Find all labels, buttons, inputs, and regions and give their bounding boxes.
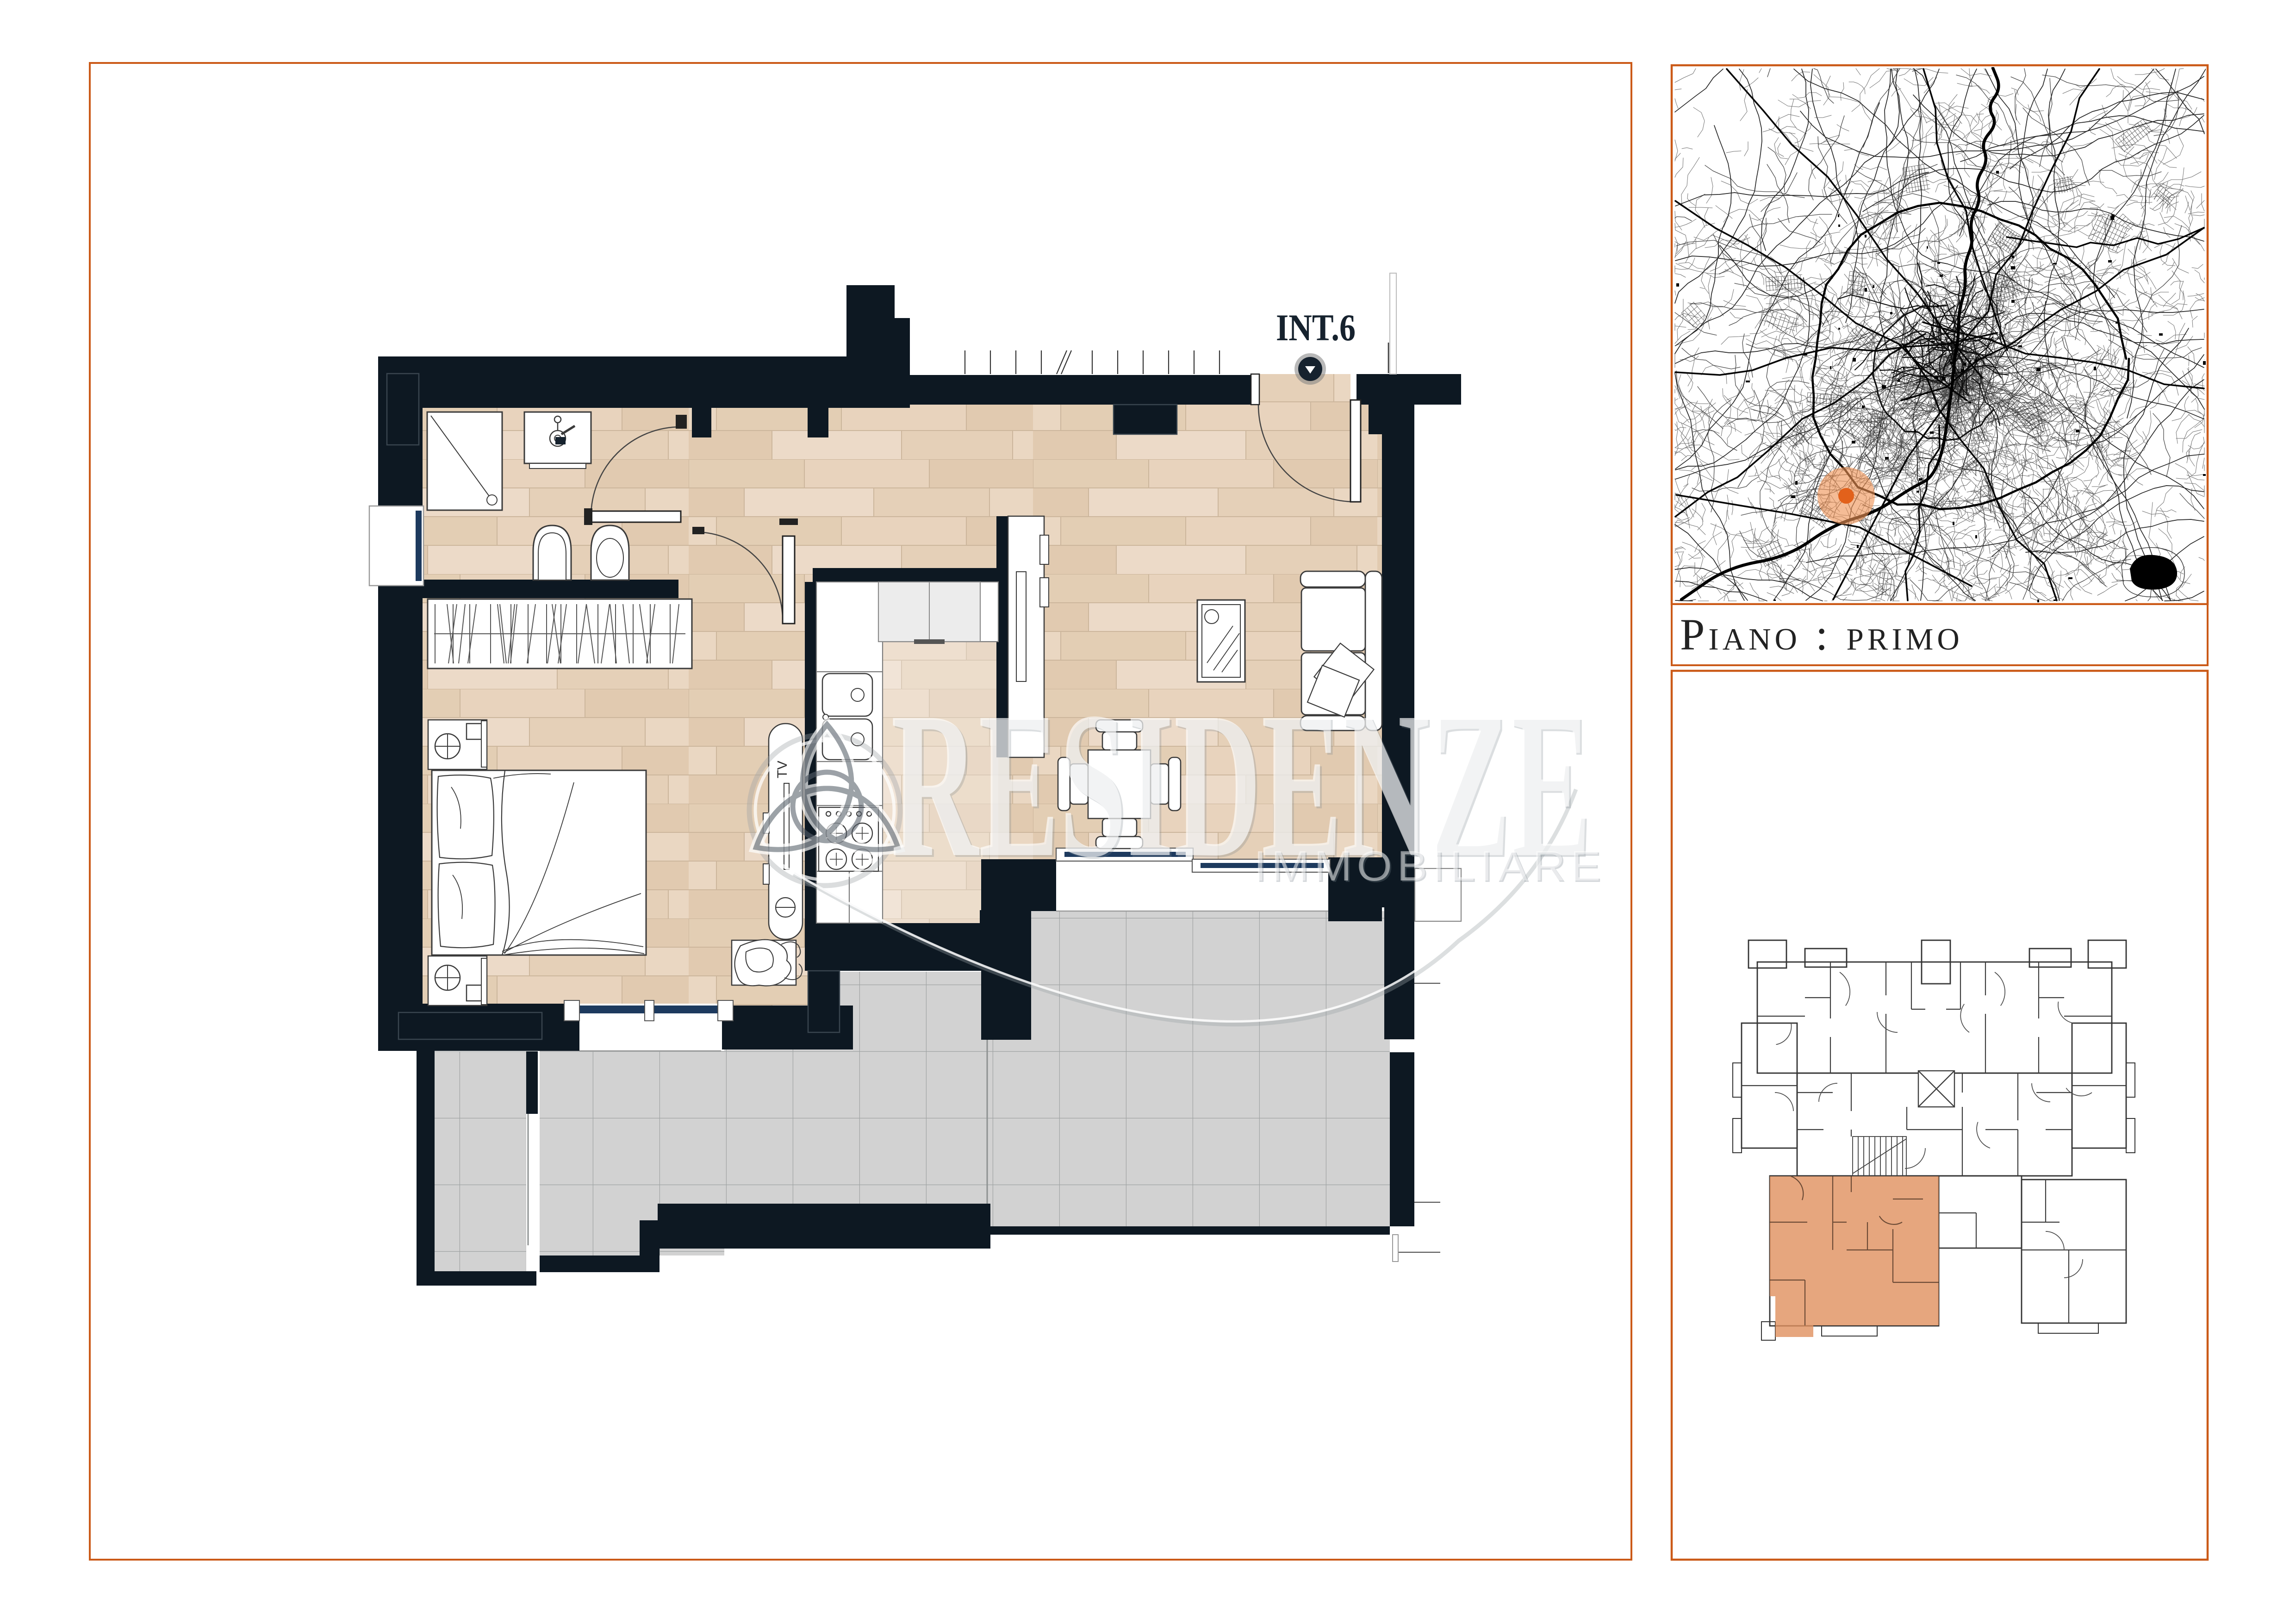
svg-text:IMMOBILIARE: IMMOBILIARE	[1254, 843, 1605, 890]
svg-text:INT.6: INT.6	[1276, 306, 1356, 349]
svg-text:TV: TV	[775, 761, 790, 778]
svg-text:Piano : primo: Piano : primo	[1680, 610, 1963, 659]
